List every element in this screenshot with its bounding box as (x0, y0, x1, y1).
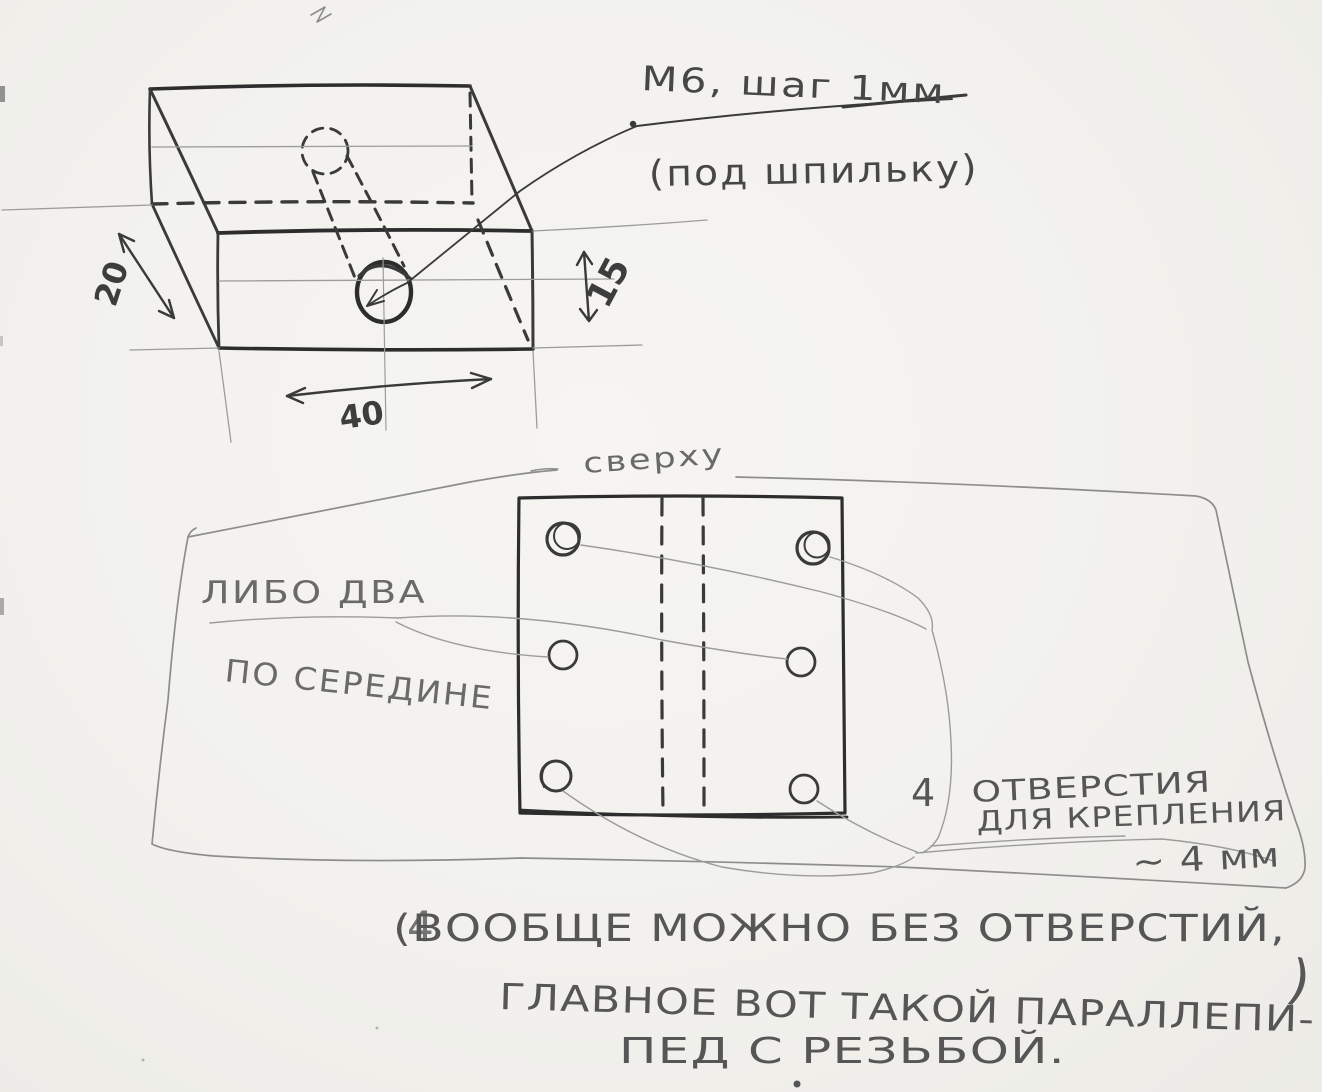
plate-dashed-line-right (703, 498, 704, 813)
block-front-left-edge (218, 233, 219, 348)
hole-mid-right (787, 648, 815, 676)
block-bottom-left-slant-edge (152, 204, 219, 348)
hole-top-left-retrace (554, 523, 580, 549)
top-view-sketch: сверху ЛИБО ДВА ПО СЕРЕДИНЕ 4 ОТВЕРСТИЯ … (152, 437, 1305, 888)
hole-top-right (797, 532, 829, 564)
extension-right-for-40 (533, 351, 537, 428)
plate-holes (541, 523, 830, 803)
block-back-top-edge (150, 85, 470, 89)
dim-label-width-40: 40 (337, 393, 386, 437)
extension-left-of-bottom (130, 348, 219, 350)
hole-top-right-retrace (805, 533, 830, 558)
holes-note-line3: ~ 4 мм (1131, 835, 1281, 883)
extension-top-for-15 (533, 220, 707, 231)
leader-alt-note-to-mid-left-hole (396, 622, 548, 657)
thread-note-line1: М6, шаг 1мм (641, 59, 947, 112)
block-top-left-slant-edge (150, 89, 218, 233)
iso-view-sketch: М6, шаг 1мм (под шпильку) 20 15 40 (2, 59, 979, 442)
edge-mark-1 (0, 86, 5, 102)
paper-speck-2 (376, 1027, 379, 1030)
footnote-text: 4 (ВООБЩЕ МОЖНО БЕЗ ОТВЕРСТИЙ, ) ГЛАВНОЕ… (393, 902, 1317, 1088)
dim-label-depth-20: 20 (87, 257, 137, 311)
dim-arrow-40 (287, 373, 491, 403)
block-hidden-bottom-edge (152, 202, 473, 204)
hole-top-left (547, 523, 579, 555)
block-top-right-slant-edge (470, 86, 532, 231)
hole-mid-left (549, 641, 577, 669)
paper-speck-1 (142, 1059, 145, 1062)
sketch-drawing: М6, шаг 1мм (под шпильку) 20 15 40 (0, 0, 1322, 1092)
scanned-sketch-page: М6, шаг 1мм (под шпильку) 20 15 40 (0, 0, 1322, 1092)
construction-top-mid-line (152, 146, 472, 147)
edge-mark-3 (0, 598, 4, 615)
block-hidden-right-edge (470, 93, 472, 202)
edge-mark-2 (0, 336, 3, 346)
leader-bottom-right-hole (817, 801, 917, 852)
thread-leader-line (367, 95, 966, 306)
extension-left-for-40 (219, 351, 231, 442)
hole-bottom-right (790, 775, 818, 803)
hole-center-line (383, 258, 386, 430)
footnote-line1: (ВООБЩЕ МОЖНО БЕЗ ОТВЕРСТИЙ, (393, 906, 1286, 950)
thread-note-line2: (под шпильку) (648, 148, 979, 195)
alt-note-line1: ЛИБО ДВА (201, 575, 427, 611)
construction-left-extension (2, 205, 152, 210)
hole-top-dashed-circle (302, 128, 348, 174)
stray-pen-dot (794, 1081, 801, 1088)
alt-note-line2: ПО СЕРЕДИНЕ (223, 653, 495, 717)
blob-outline-top-left (188, 470, 557, 537)
block-front-top-edge (218, 230, 532, 233)
view-label: сверху (582, 437, 726, 480)
block-front-right-edge (532, 231, 533, 349)
holes-count: 4 (911, 771, 936, 815)
footnote-line3: ПЕД С РЕЗЬБОЙ. (619, 1030, 1066, 1072)
hole-channel-right-dashed (347, 156, 404, 266)
plate-dashed-line-left (662, 498, 663, 813)
leader-top-left-hole (581, 545, 926, 629)
block-front-bottom-edge (219, 348, 533, 350)
hole-channel-left-dashed (313, 172, 357, 283)
corner-scribble-mark (311, 7, 331, 22)
construction-front-mid-line (219, 279, 614, 281)
extension-bottom-for-15 (533, 345, 642, 348)
